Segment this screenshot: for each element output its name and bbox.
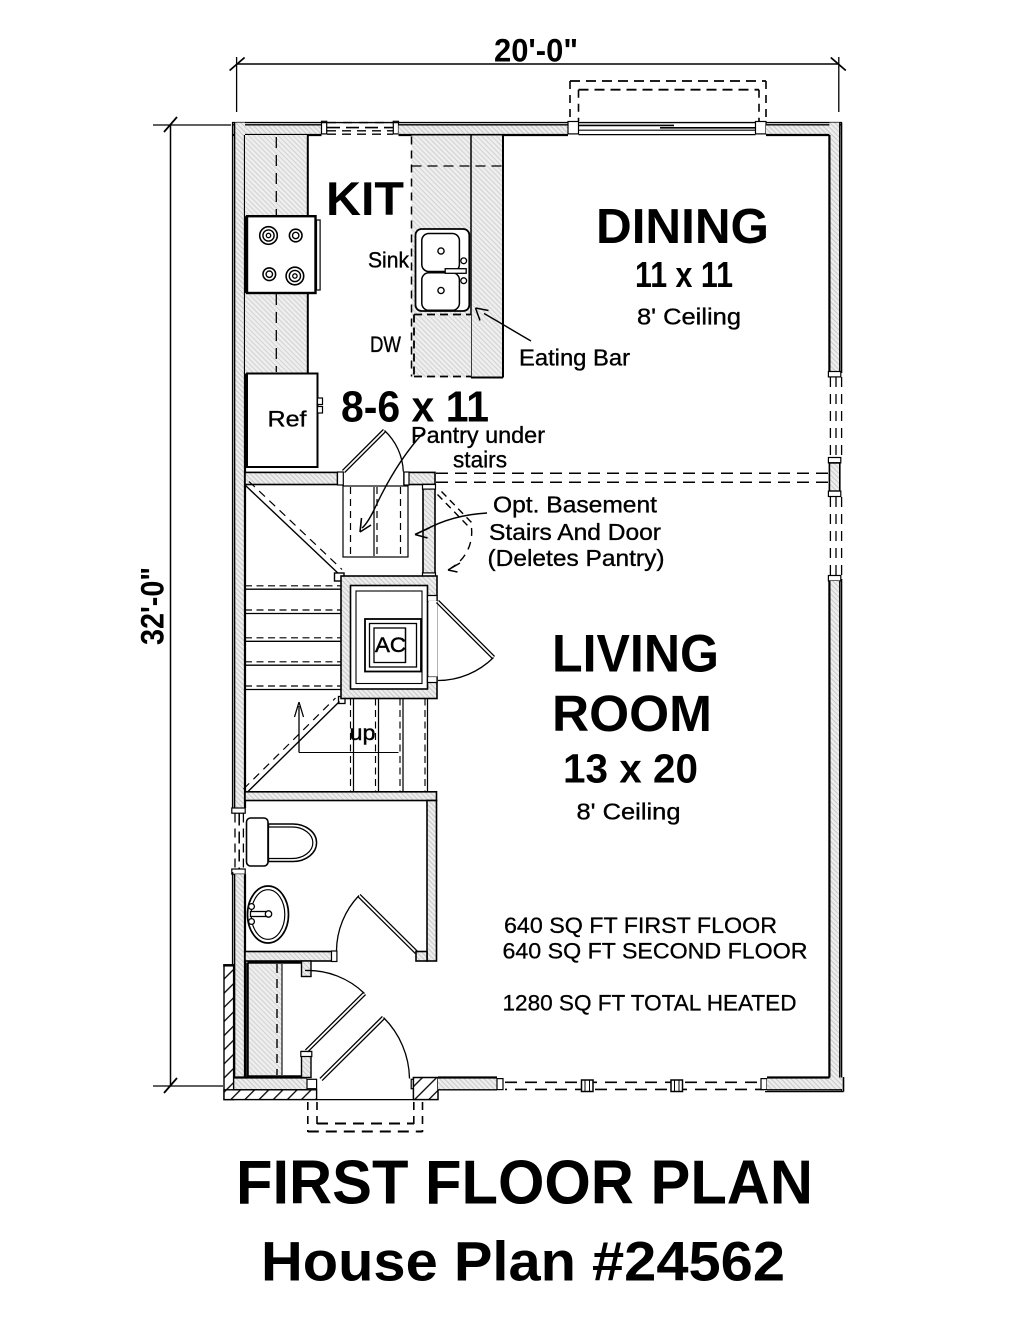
svg-text:FIRST FLOOR PLAN: FIRST FLOOR PLAN xyxy=(236,1149,813,1218)
svg-text:Pantry under: Pantry under xyxy=(411,422,545,448)
svg-text:640 SQ FT FIRST FLOOR: 640 SQ FT FIRST FLOOR xyxy=(504,913,777,938)
svg-text:13 x 20: 13 x 20 xyxy=(563,746,698,792)
svg-text:Ref: Ref xyxy=(268,407,308,432)
svg-text:20'-0": 20'-0" xyxy=(494,33,578,69)
svg-text:8' Ceiling: 8' Ceiling xyxy=(577,799,681,825)
svg-text:DINING: DINING xyxy=(596,200,769,254)
svg-text:DW: DW xyxy=(370,332,401,357)
svg-text:640 SQ FT SECOND FLOOR: 640 SQ FT SECOND FLOOR xyxy=(503,939,808,964)
svg-text:AC: AC xyxy=(375,634,406,657)
svg-text:LIVING: LIVING xyxy=(552,625,719,684)
svg-text:(Deletes Pantry): (Deletes Pantry) xyxy=(488,545,665,571)
svg-text:Sink: Sink xyxy=(368,248,410,273)
svg-text:Eating Bar: Eating Bar xyxy=(519,345,630,371)
svg-text:House Plan #24562: House Plan #24562 xyxy=(261,1230,785,1293)
svg-text:32'-0": 32'-0" xyxy=(135,567,171,645)
svg-text:stairs: stairs xyxy=(453,447,507,473)
svg-text:ROOM: ROOM xyxy=(552,685,712,742)
svg-text:Opt. Basement: Opt. Basement xyxy=(493,492,658,518)
svg-text:11 x 11: 11 x 11 xyxy=(635,254,733,295)
svg-text:up: up xyxy=(350,722,376,745)
svg-text:1280 SQ FT TOTAL HEATED: 1280 SQ FT TOTAL HEATED xyxy=(503,991,797,1016)
svg-text:KIT: KIT xyxy=(326,172,404,225)
svg-text:Stairs And Door: Stairs And Door xyxy=(489,519,661,545)
svg-text:8' Ceiling: 8' Ceiling xyxy=(637,304,741,330)
